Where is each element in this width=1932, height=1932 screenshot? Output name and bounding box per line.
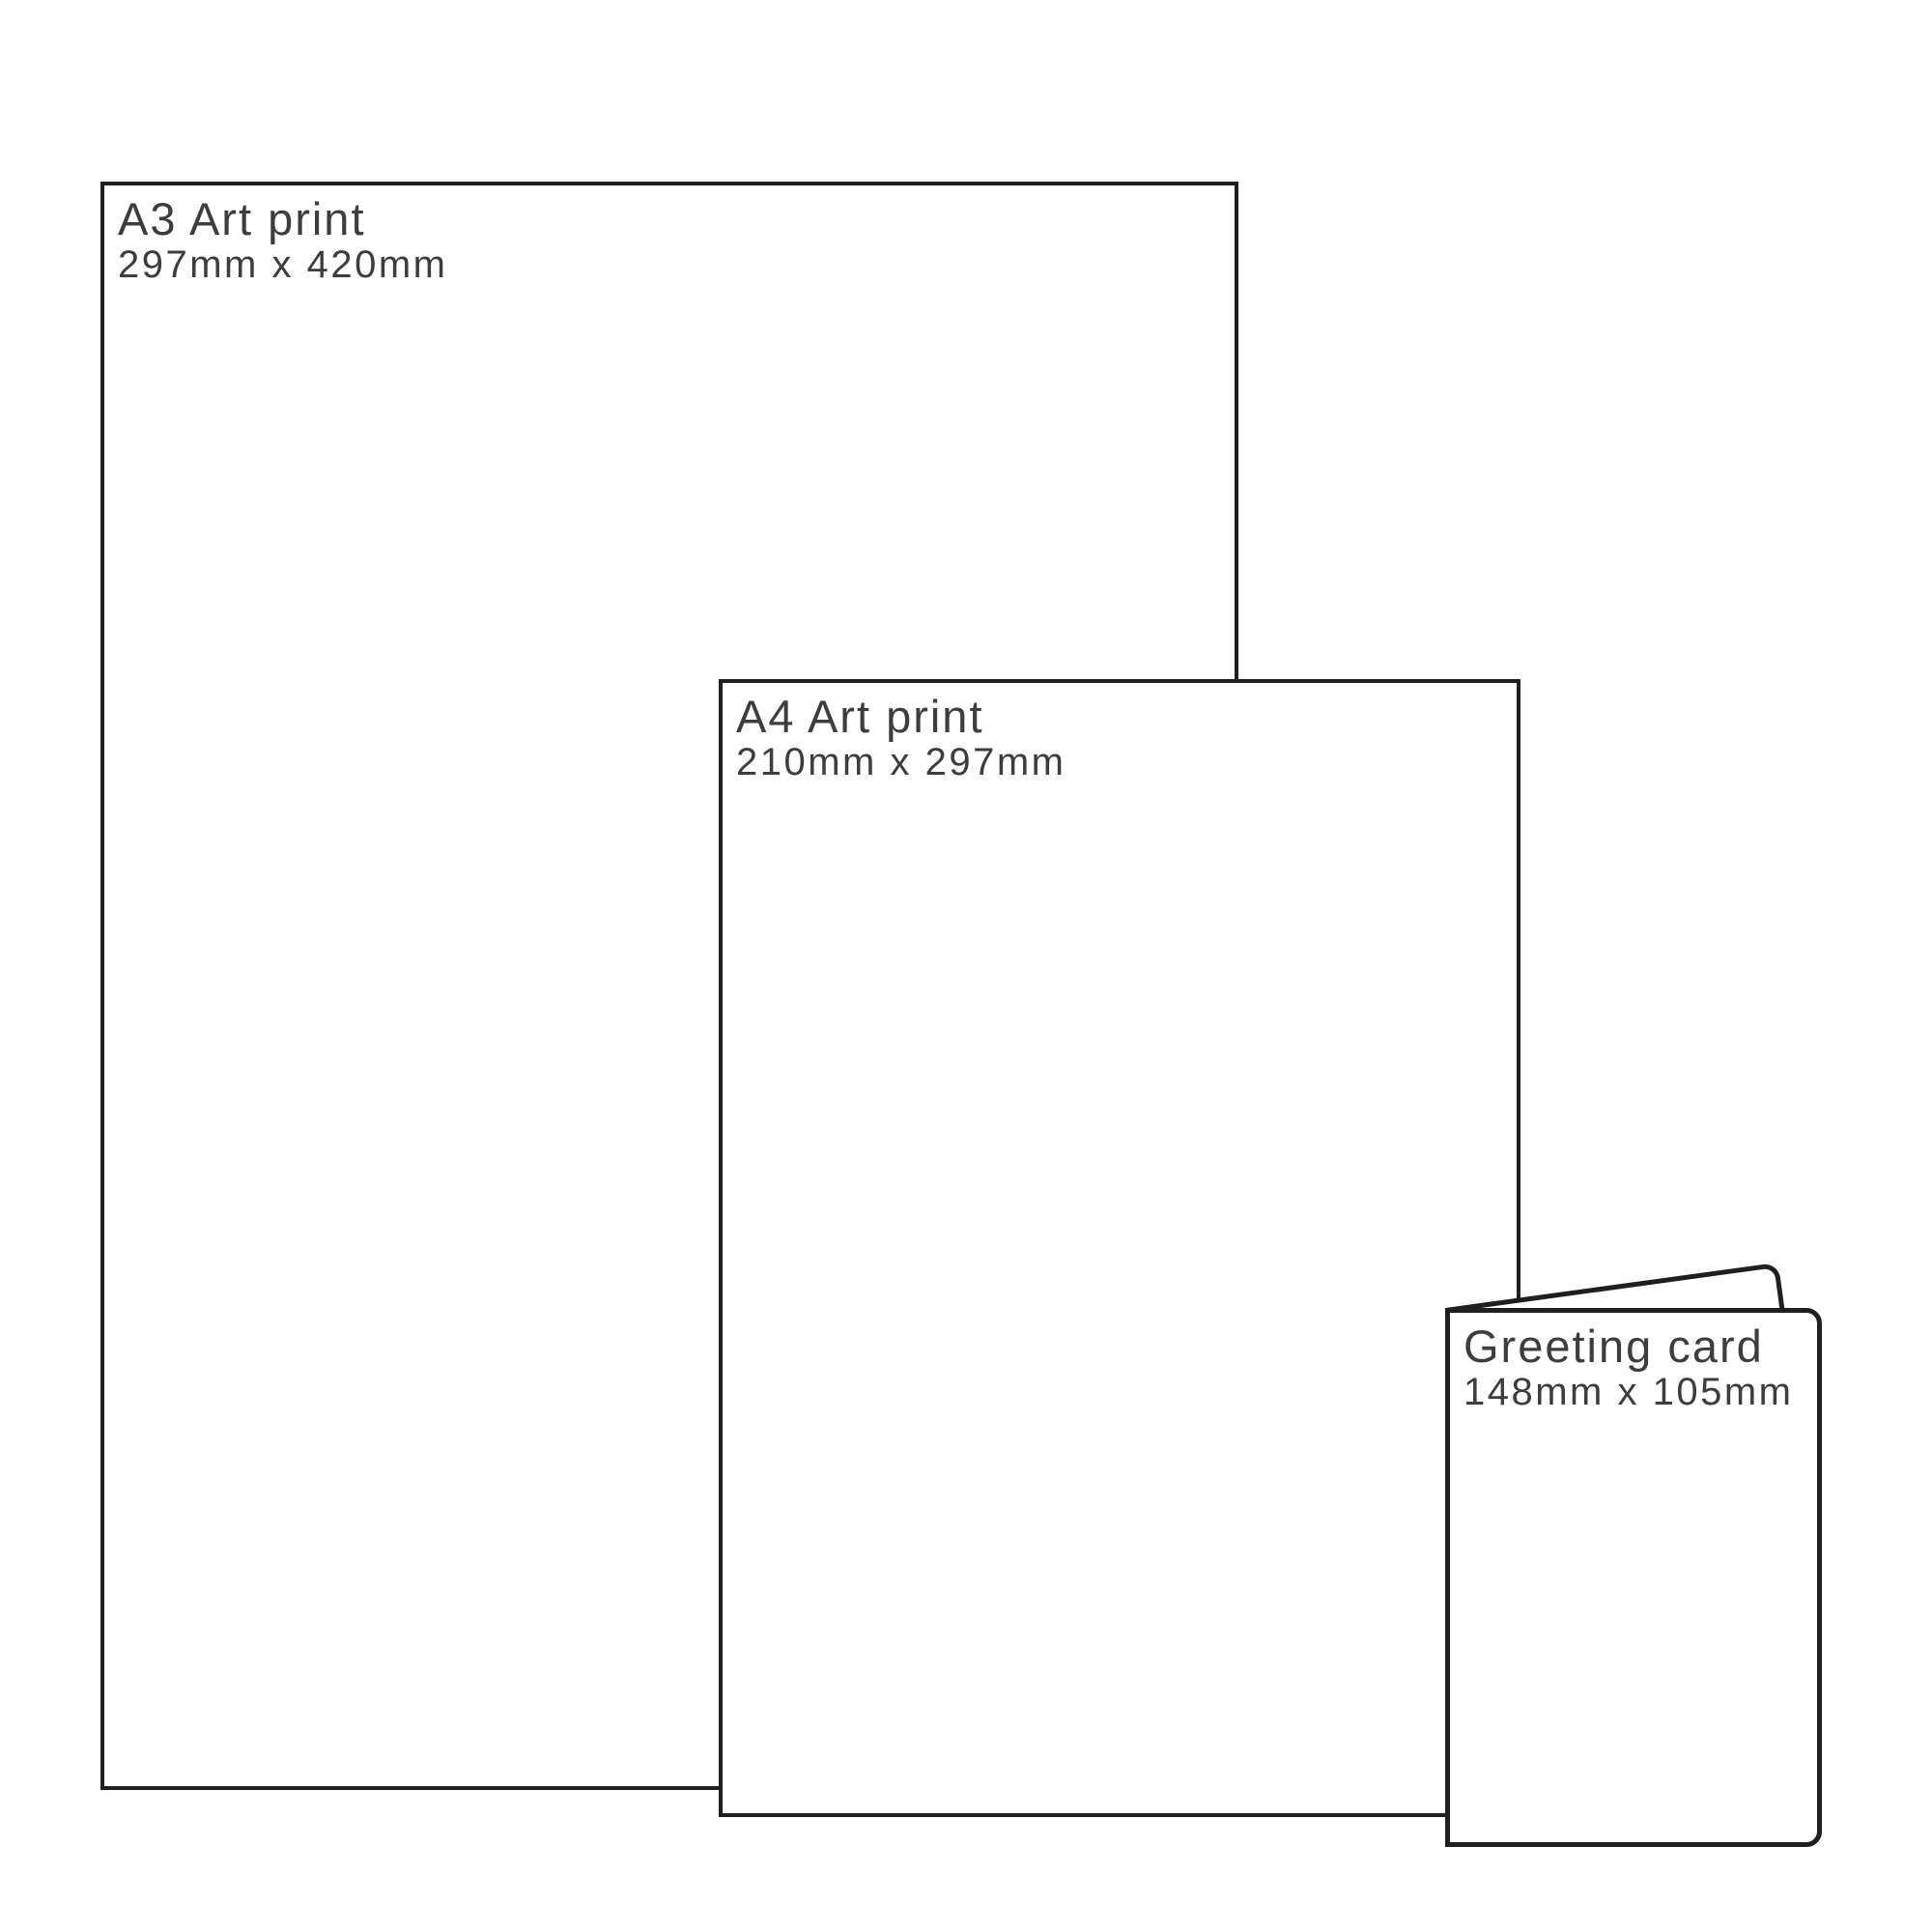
- print-size-comparison-diagram: A3 Art print 297mm x 420mm A4 Art print …: [0, 0, 1932, 1932]
- greeting-card-outline: Greeting card 148mm x 105mm: [1445, 1308, 1822, 1847]
- a4-dimensions: 210mm x 297mm: [736, 742, 1503, 782]
- a4-print-outline: A4 Art print 210mm x 297mm: [719, 679, 1520, 1817]
- a3-title: A3 Art print: [118, 195, 1221, 244]
- a4-label: A4 Art print 210mm x 297mm: [723, 683, 1517, 792]
- a3-label: A3 Art print 297mm x 420mm: [104, 185, 1235, 295]
- greeting-card-label: Greeting card 148mm x 105mm: [1450, 1313, 1817, 1422]
- a3-dimensions: 297mm x 420mm: [118, 244, 1221, 285]
- greeting-card-title: Greeting card: [1463, 1322, 1804, 1372]
- greeting-card-dimensions: 148mm x 105mm: [1463, 1372, 1804, 1412]
- a4-title: A4 Art print: [736, 693, 1503, 742]
